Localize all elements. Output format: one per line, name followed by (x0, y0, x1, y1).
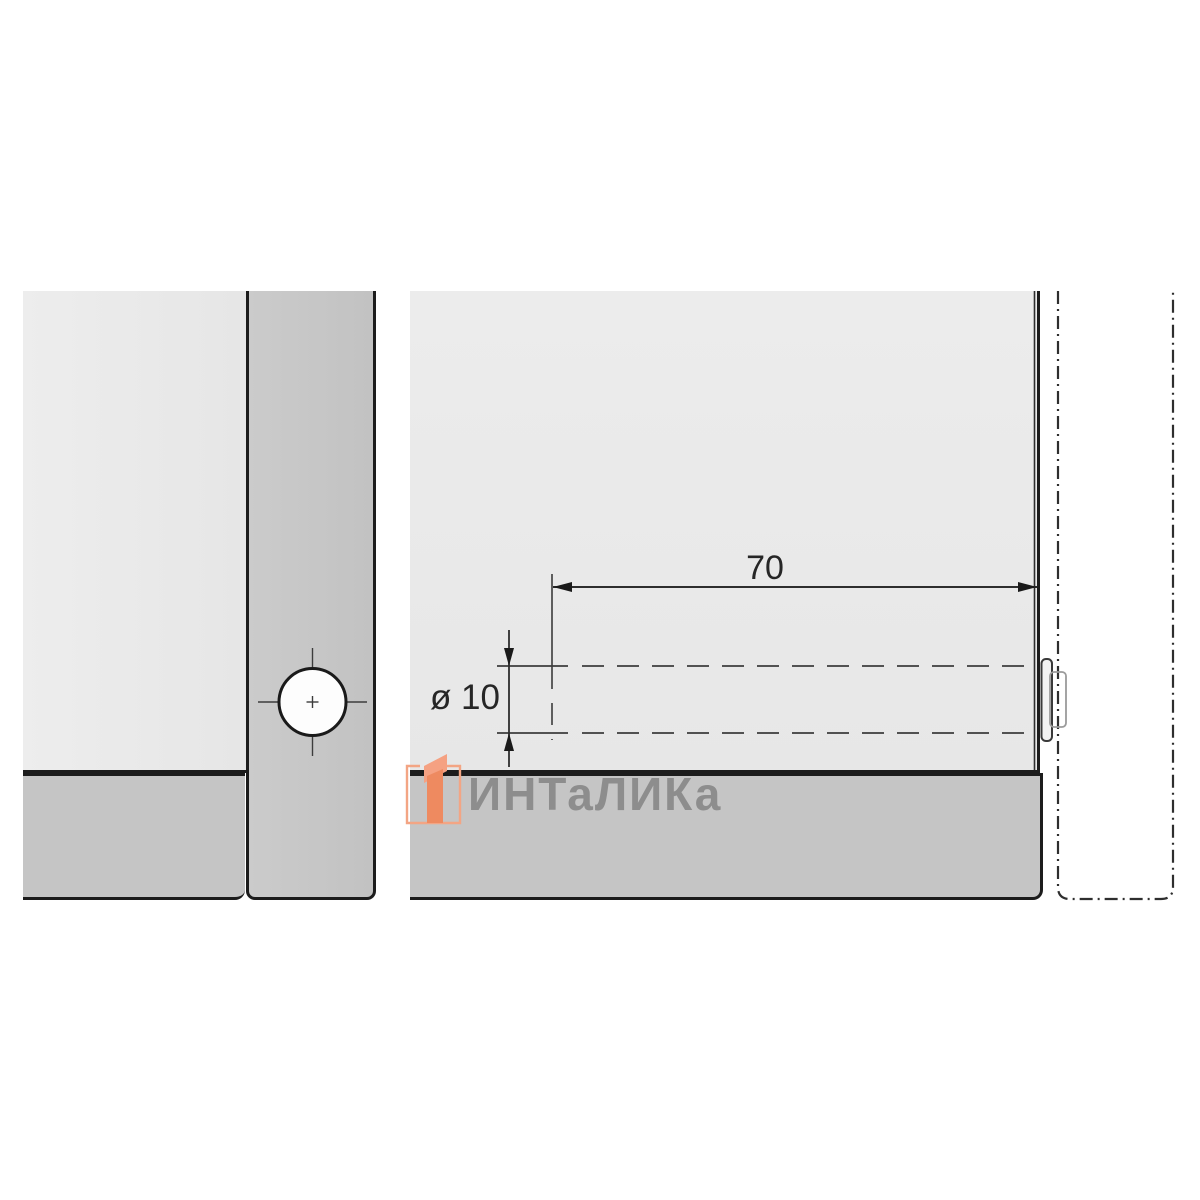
intalika-logo-icon (407, 754, 460, 823)
diameter-arrow-down-icon (504, 648, 514, 666)
logo-bar-shape (427, 769, 443, 823)
watermark-brand-text: ИНТаЛИКа (468, 771, 722, 817)
door-phantom-outline (1058, 291, 1173, 899)
diameter-dimension-label: ø 10 (396, 680, 500, 715)
drawing-lines-overlay (0, 0, 1200, 1200)
drilling-diagram-canvas: 70 ø 10 ИНТаЛИКа (0, 0, 1200, 1200)
depth-dimension-label: 70 (700, 551, 830, 585)
diameter-arrow-up-icon (504, 733, 514, 751)
depth-arrow-left-icon (553, 582, 572, 592)
